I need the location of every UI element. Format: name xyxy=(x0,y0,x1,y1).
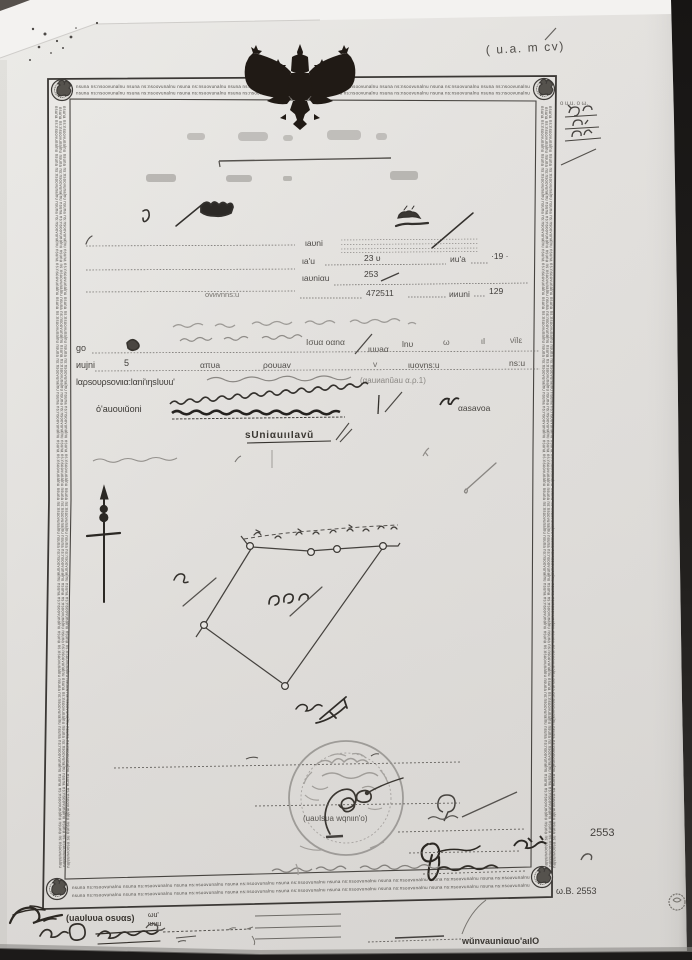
svg-text:ό'auουιŭoni: ό'auουιŭoni xyxy=(96,404,142,414)
svg-text:2553: 2553 xyxy=(590,827,614,839)
svg-text:(uaυΙυυa osυαs): (uaυΙυυa osυαs) xyxy=(66,913,135,923)
svg-text:ιuovns:u: ιuovns:u xyxy=(408,360,440,370)
svg-text:sUniαuιιΙаvŭ: sUniαuιιΙаvŭ xyxy=(245,430,314,441)
svg-text:иujni: иujni xyxy=(76,360,95,370)
svg-text:Ισuα oαnα: Ισuα oαnα xyxy=(306,337,345,347)
svg-text:иu'а: иu'а xyxy=(450,254,466,264)
svg-text:(αauиanŭau α.ρ.1): (αauиanŭau α.ρ.1) xyxy=(360,376,426,385)
svg-text:ииuni: ииuni xyxy=(449,289,470,299)
svg-text:αasavοa: αasavοa xyxy=(458,403,491,413)
svg-text:ω.B. 2553: ω.B. 2553 xyxy=(556,886,597,896)
svg-text:ιΙ: ιΙ xyxy=(481,336,485,346)
svg-text:lnυ: lnυ xyxy=(402,339,414,349)
svg-text:ιаυniαu: ιаυniαu xyxy=(302,273,330,283)
svg-text:go: go xyxy=(76,343,86,353)
svg-text:ρουuav: ρουuav xyxy=(263,360,292,370)
svg-text:ιа'u: ιа'u xyxy=(302,256,315,266)
svg-text:(uaυΙsυa wqnιιn'ο): (uaυΙsυa wqnιιn'ο) xyxy=(303,814,368,823)
svg-text:νϊΙε: νϊΙε xyxy=(510,335,523,345)
svg-text:ωu': ωu' xyxy=(148,912,159,919)
svg-text:23 υ: 23 υ xyxy=(364,253,381,263)
svg-text:253: 253 xyxy=(364,269,378,279)
svg-text:ns:u: ns:u xyxy=(509,358,525,368)
svg-text:ω: ω xyxy=(443,337,450,347)
svg-text:129: 129 xyxy=(489,286,503,296)
svg-text:απυа: απυа xyxy=(200,360,220,370)
svg-text:472511: 472511 xyxy=(366,288,394,298)
svg-text:wŭnvauniαuo'aιΙΟ: wŭnvauniαuo'aιΙΟ xyxy=(461,936,539,946)
svg-text:ιυυaα: ιυυaα xyxy=(368,344,389,354)
svg-text:·19 ·: ·19 · xyxy=(491,251,508,261)
svg-text:ο u.u. ο ω.: ο u.u. ο ω. xyxy=(560,101,588,107)
svg-text:5: 5 xyxy=(124,358,129,368)
svg-text:lαρsoυρsovιια:lαni'ιηsΙυυu': lαρsoυρsovιια:lαni'ιηsΙυυu' xyxy=(76,377,175,387)
svg-text:ιаυni: ιаυni xyxy=(305,238,323,248)
